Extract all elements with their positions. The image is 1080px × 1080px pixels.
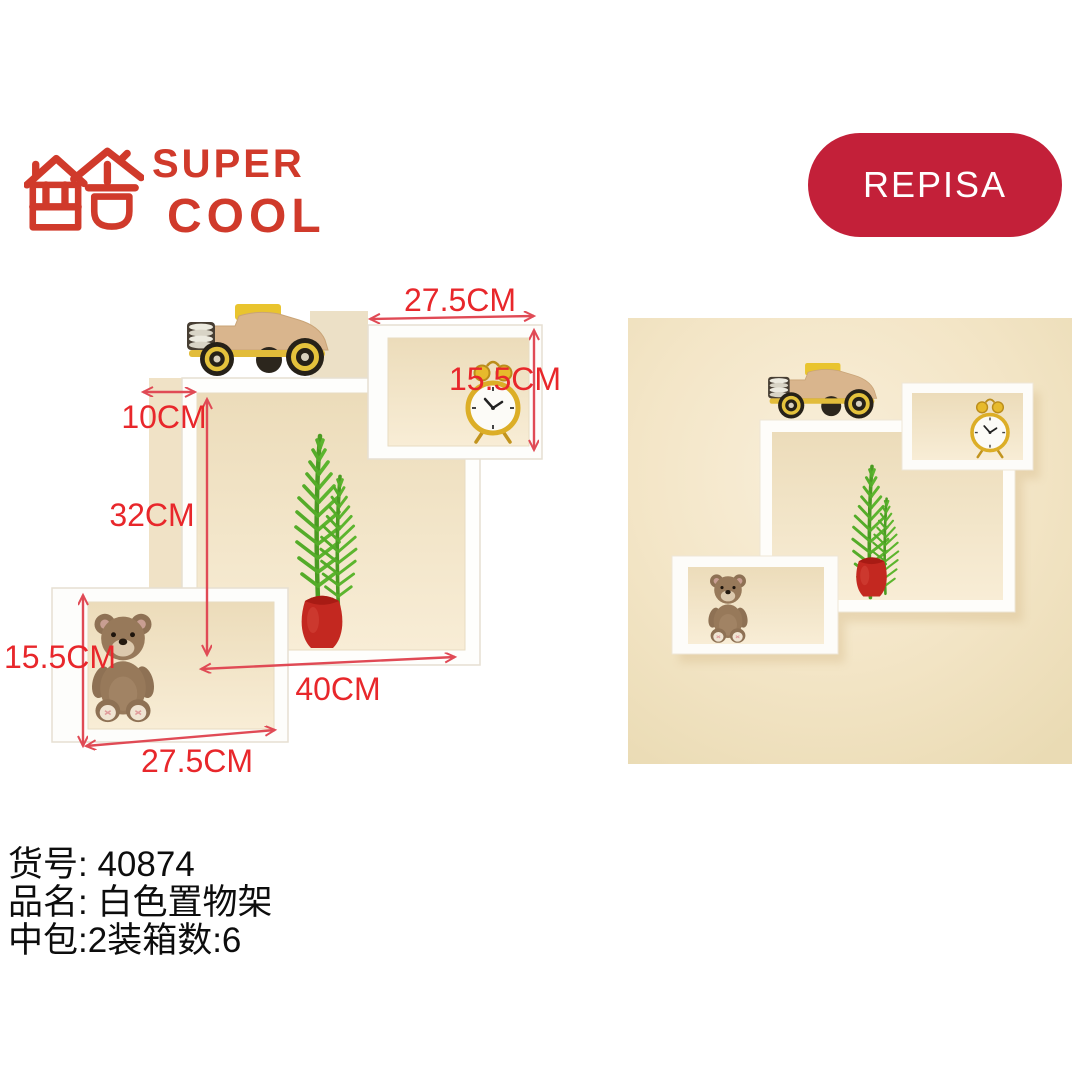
brand-name-line2: COOL [167, 193, 326, 241]
brand-name: SUPER COOL [152, 144, 326, 241]
dimension-diagram: 27.5CM 15.5CM 10CM 32CM 40CM 15.5CM 27.5… [0, 278, 580, 803]
dim-top-right-height: 15.5CM [449, 361, 561, 397]
red-vase-icon [856, 557, 887, 596]
dim-left-box-height: 15.5CM [4, 639, 116, 675]
badge-label: REPISA [863, 164, 1007, 206]
lifestyle-photo [628, 318, 1072, 764]
top-right-shelf-box [902, 383, 1033, 470]
repisa-badge: REPISA [808, 133, 1062, 237]
product-info: 货号: 40874 品名: 白色置物架 中包:2装箱数:6 [8, 846, 272, 959]
dim-depth: 10CM [121, 399, 206, 435]
brand-logo: SUPER COOL [24, 132, 326, 248]
dim-main-width: 40CM [295, 671, 380, 707]
toy-car-icon [187, 304, 328, 376]
house-character-logo-icon [24, 132, 144, 248]
dim-main-height: 32CM [109, 497, 194, 533]
packing-line: 中包:2装箱数:6 [8, 922, 272, 960]
brand-name-line1: SUPER [152, 144, 326, 184]
red-vase-icon [302, 596, 343, 648]
product-card: SUPER COOL REPISA [0, 0, 1080, 1080]
dim-bottom-width: 27.5CM [141, 743, 253, 779]
item-number-line: 货号: 40874 [8, 846, 272, 884]
dim-top-width: 27.5CM [404, 282, 516, 318]
bottom-left-shelf-box [672, 556, 838, 654]
product-name-line: 品名: 白色置物架 [8, 884, 272, 922]
